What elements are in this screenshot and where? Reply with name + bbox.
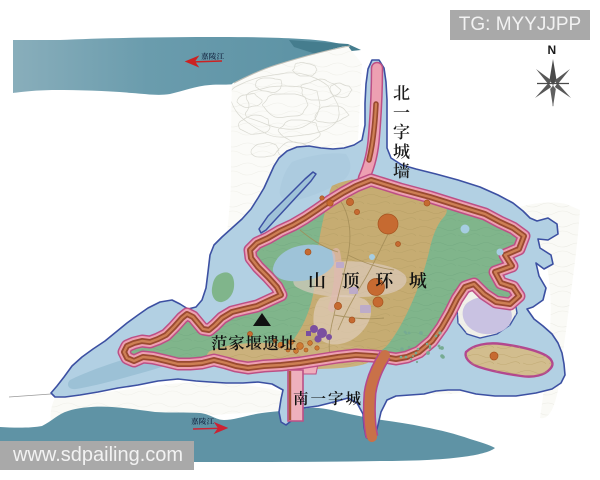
svg-text:N: N	[548, 43, 557, 57]
